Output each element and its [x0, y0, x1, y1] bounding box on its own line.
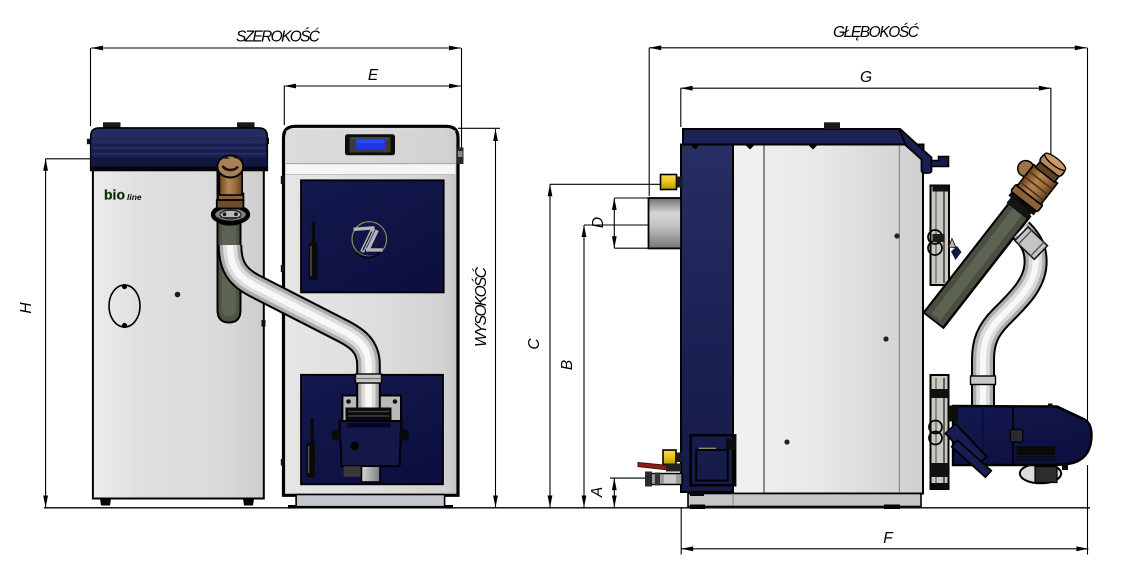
- svg-text:B: B: [559, 360, 576, 370]
- svg-text:WYSOKOŚĆ: WYSOKOŚĆ: [472, 266, 490, 347]
- svg-text:F: F: [883, 530, 894, 547]
- svg-text:line: line: [127, 192, 142, 202]
- svg-text:SZEROKOŚĆ: SZEROKOŚĆ: [236, 28, 321, 46]
- svg-text:C: C: [526, 338, 543, 350]
- svg-text:E: E: [368, 67, 379, 84]
- svg-text:G: G: [860, 69, 872, 86]
- svg-text:bio: bio: [104, 187, 125, 203]
- svg-text:D: D: [590, 217, 607, 228]
- svg-text:A: A: [589, 487, 606, 498]
- svg-text:GŁĘBOKOŚĆ: GŁĘBOKOŚĆ: [833, 23, 920, 41]
- svg-text:H: H: [18, 302, 35, 314]
